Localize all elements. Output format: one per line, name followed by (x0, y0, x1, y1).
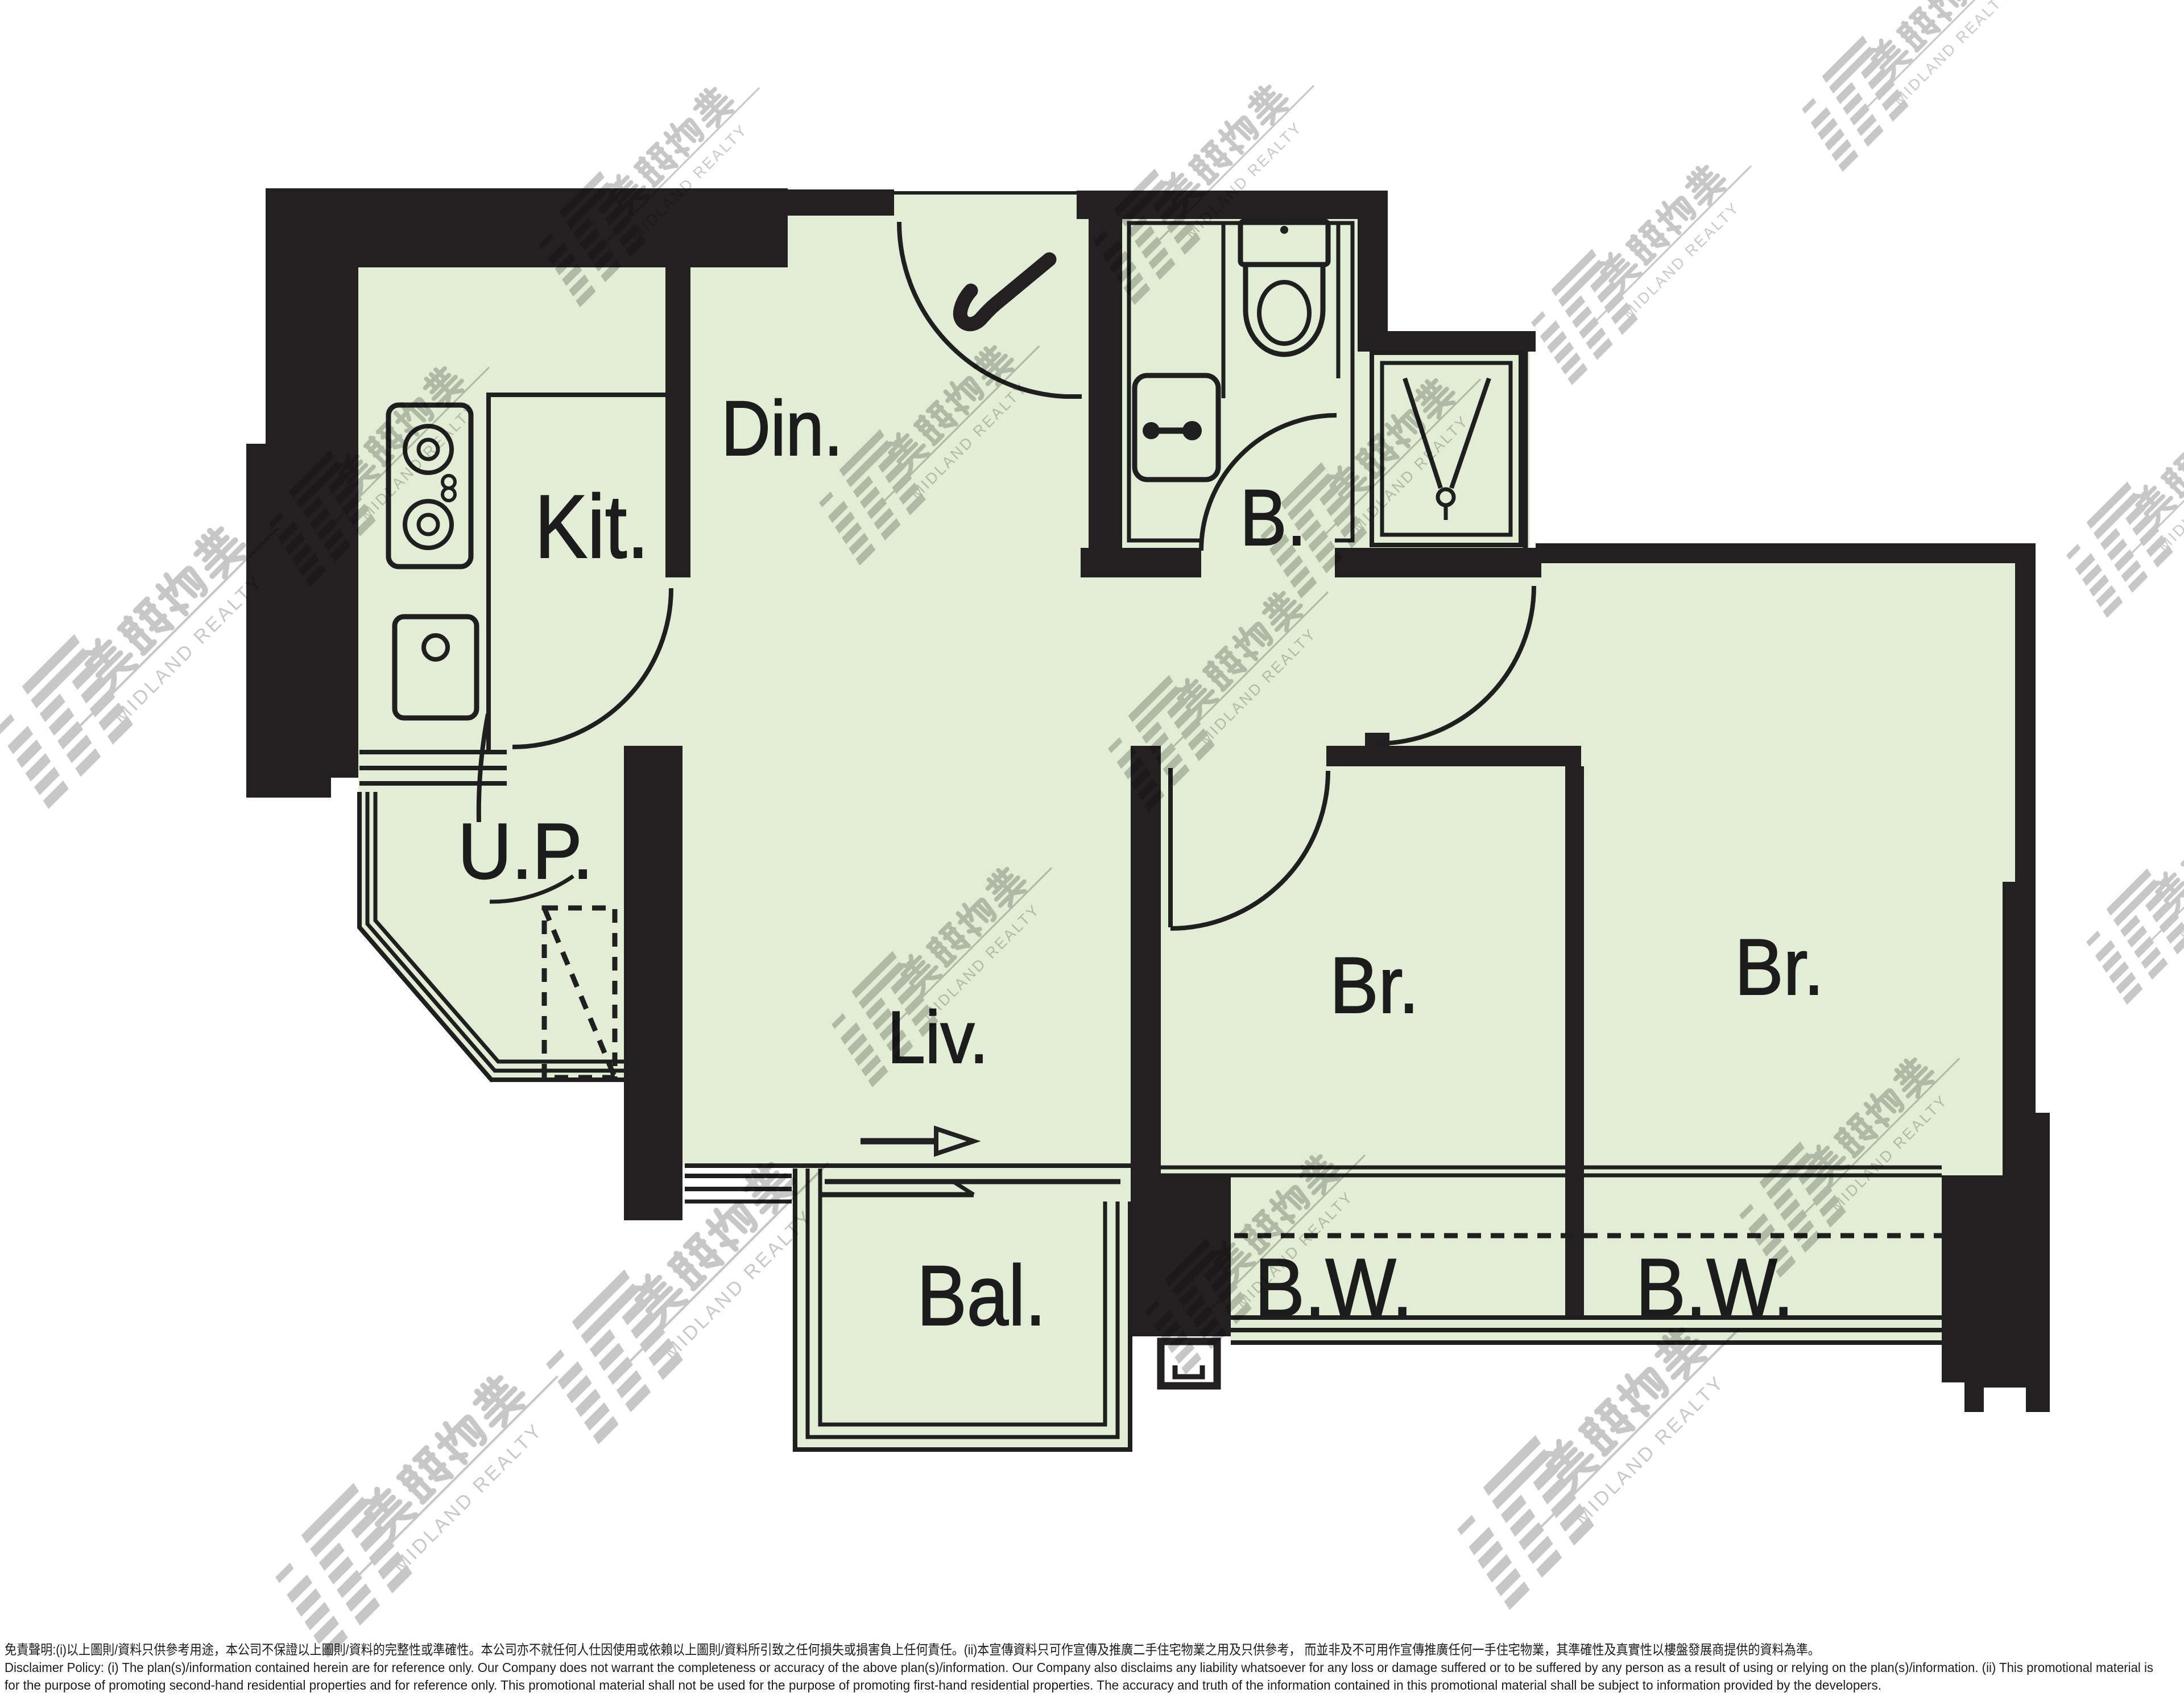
svg-text:Disclaimer Policy: (i) The pla: Disclaimer Policy: (i) The plan(s)/infor… (5, 1660, 2153, 1675)
svg-text:Bal.: Bal. (917, 1248, 1046, 1343)
svg-text:Br.: Br. (1330, 940, 1419, 1030)
svg-text:for the purpose of promoting s: for the purpose of promoting second-hand… (5, 1678, 1881, 1692)
svg-text:Kit.: Kit. (535, 477, 649, 577)
svg-text:B.W.: B.W. (1636, 1241, 1794, 1334)
svg-text:Din.: Din. (721, 385, 843, 472)
svg-text:免責聲明:(i)以上圖則/資料只供參考用途，本公司不保證以上: 免責聲明:(i)以上圖則/資料只供參考用途，本公司不保證以上圖則/資料的完整性或… (5, 1642, 1820, 1658)
svg-text:Br.: Br. (1735, 922, 1824, 1011)
svg-text:U.P.: U.P. (458, 807, 593, 895)
